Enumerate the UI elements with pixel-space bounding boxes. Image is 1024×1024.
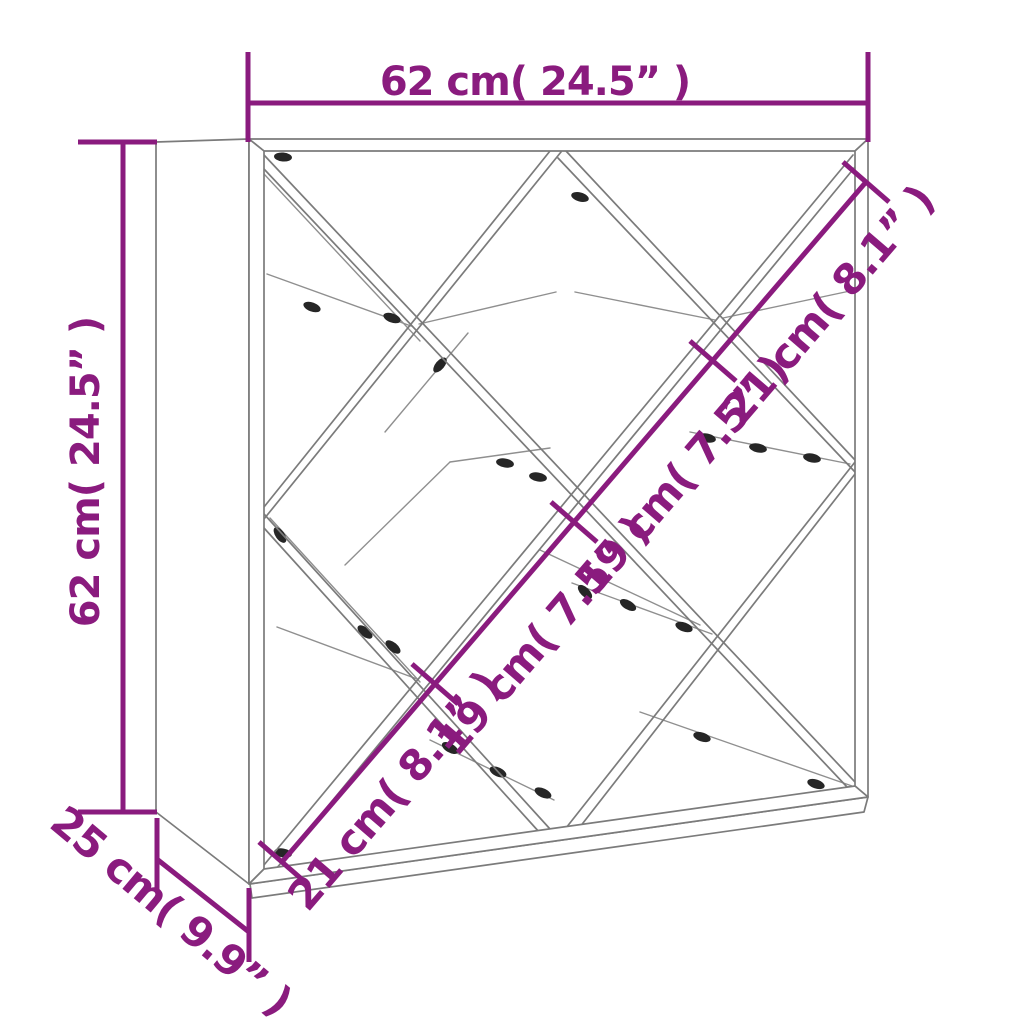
cabinet-side-panel [156,139,249,884]
height-dimension: 62 cm( 24.5” ) [63,142,157,812]
divider-edge [276,167,855,869]
screw [618,597,638,614]
width-dimension-label: 62 cm( 24.5” ) [380,59,690,105]
diagonal-segment-label-4: 21 cm( 8.1” ) [712,175,944,433]
frame-left-rail [249,139,264,884]
product-dimension-diagram: 62 cm( 24.5” ) 62 cm( 24.5” ) 25 cm( 9.9… [0,0,1024,1024]
height-dimension-label: 62 cm( 24.5” ) [63,317,109,627]
divider-edge [264,169,848,788]
screw [274,152,293,163]
frame-top-rail [249,139,868,151]
dimension-tick [690,341,736,381]
width-dimension: 62 cm( 24.5” ) [248,52,868,142]
screw [806,777,826,791]
screw [802,452,821,465]
divider-edge [264,155,855,782]
screw [570,190,590,203]
screws [271,152,826,859]
wine-rack-dimension-drawing: 62 cm( 24.5” ) 62 cm( 24.5” ) 25 cm( 9.9… [0,0,1024,1024]
screw [495,457,514,469]
compartment-depth-lines [264,174,852,800]
divider-edge [264,152,561,519]
screw [302,300,322,315]
screw [528,471,547,483]
divider-edge [566,462,855,828]
screw [692,730,712,744]
